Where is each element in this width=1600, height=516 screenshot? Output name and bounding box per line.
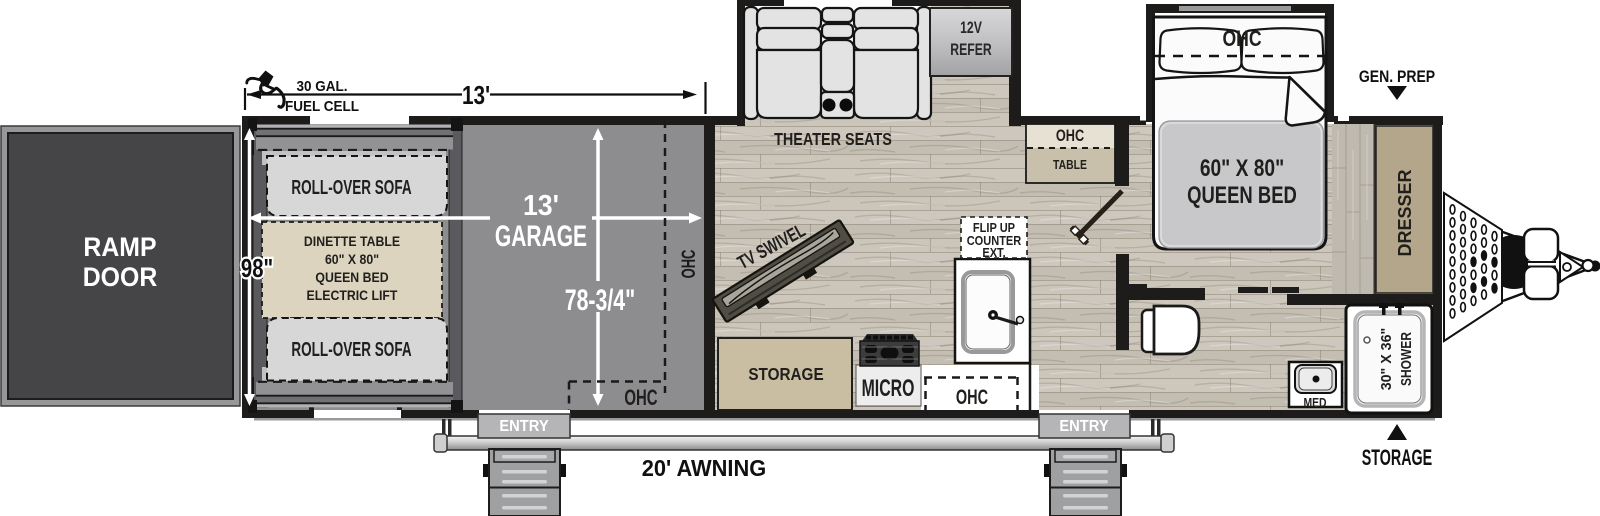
svg-text:60" X 80": 60" X 80" bbox=[1200, 154, 1284, 182]
svg-text:THEATER SEATS: THEATER SEATS bbox=[774, 130, 892, 150]
svg-text:30 GAL.: 30 GAL. bbox=[297, 78, 348, 95]
svg-text:OHC: OHC bbox=[956, 385, 988, 408]
svg-text:60" X 80": 60" X 80" bbox=[325, 251, 379, 267]
svg-text:GEN. PREP: GEN. PREP bbox=[1359, 68, 1435, 86]
svg-text:OHC: OHC bbox=[624, 385, 658, 410]
svg-text:ENTRY: ENTRY bbox=[1059, 418, 1108, 435]
svg-text:ENTRY: ENTRY bbox=[499, 418, 548, 435]
svg-text:EXT.: EXT. bbox=[982, 245, 1005, 260]
svg-text:STORAGE: STORAGE bbox=[748, 364, 823, 384]
svg-text:REFER: REFER bbox=[950, 41, 992, 59]
svg-text:FUEL CELL: FUEL CELL bbox=[285, 98, 359, 115]
svg-text:ROLL-OVER SOFA: ROLL-OVER SOFA bbox=[291, 337, 412, 361]
svg-text:13': 13' bbox=[462, 81, 490, 110]
svg-text:QUEEN BED: QUEEN BED bbox=[315, 269, 388, 285]
svg-text:STORAGE: STORAGE bbox=[1362, 445, 1432, 470]
svg-text:GARAGE: GARAGE bbox=[495, 221, 587, 253]
svg-text:OHC: OHC bbox=[1222, 27, 1261, 51]
svg-text:SHOWER: SHOWER bbox=[1398, 332, 1415, 386]
svg-text:DOOR: DOOR bbox=[83, 263, 158, 292]
svg-text:QUEEN BED: QUEEN BED bbox=[1187, 182, 1297, 209]
svg-text:MICRO: MICRO bbox=[862, 376, 915, 402]
svg-text:78-3/4": 78-3/4" bbox=[565, 282, 635, 317]
svg-text:TABLE: TABLE bbox=[1053, 158, 1087, 172]
svg-text:DRESSER: DRESSER bbox=[1395, 169, 1415, 256]
svg-text:13': 13' bbox=[523, 189, 559, 221]
svg-text:OHC: OHC bbox=[1056, 126, 1084, 145]
svg-text:ROLL-OVER SOFA: ROLL-OVER SOFA bbox=[291, 175, 412, 199]
svg-text:DINETTE TABLE: DINETTE TABLE bbox=[304, 233, 400, 249]
svg-text:ELECTRIC LIFT: ELECTRIC LIFT bbox=[307, 287, 398, 303]
svg-text:98": 98" bbox=[241, 254, 273, 283]
svg-text:RAMP: RAMP bbox=[83, 233, 156, 262]
svg-text:30" X 36": 30" X 36" bbox=[1379, 328, 1395, 391]
svg-text:MED: MED bbox=[1303, 396, 1326, 410]
svg-text:OHC: OHC bbox=[679, 249, 700, 278]
svg-text:20' AWNING: 20' AWNING bbox=[642, 455, 767, 481]
svg-text:12V: 12V bbox=[960, 19, 982, 37]
